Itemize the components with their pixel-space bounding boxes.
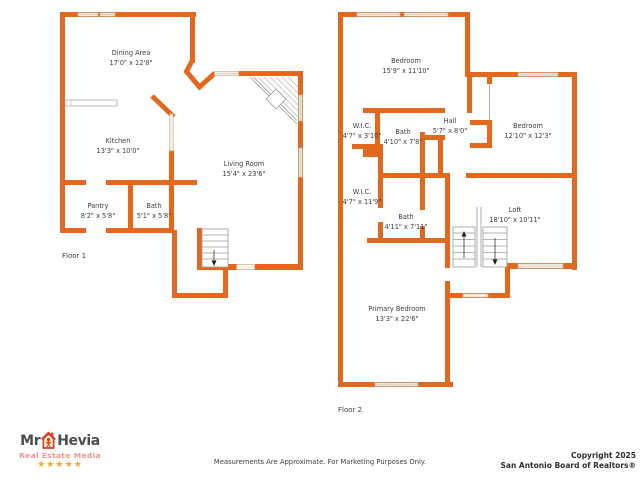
room-label-bath-lower: Bath 4'11" x 7'11" <box>385 213 428 233</box>
house-icon <box>41 431 56 450</box>
room-label-dining: Dining Area 17'0" x 12'8" <box>110 49 153 69</box>
room-label-hall: Hall 5'7" x 8'0" <box>433 117 468 137</box>
room-label-primary: Primary Bedroom 13'3" x 22'6" <box>368 305 425 325</box>
copyright-text: Copyright 2025 San Antonio Board of Real… <box>501 451 637 471</box>
room-label-bath1: Bath 5'1" x 5'8" <box>137 202 172 222</box>
room-label-kitchen: Kitchen 13'3" x 10'0" <box>97 137 140 157</box>
room-label-living: Living Room 15'4" x 23'6" <box>223 160 266 180</box>
room-label-bedroom-right: Bedroom 12'10" x 12'3" <box>504 122 551 142</box>
floor1-label: Floor 1 <box>62 252 86 260</box>
logo-text-mr: Mr <box>20 433 40 449</box>
fireplace-icon <box>250 77 298 124</box>
logo-text-hevia: Hevia <box>57 433 100 449</box>
room-label-bedroom-top: Bedroom 15'9" x 11'10" <box>382 57 429 77</box>
floorplan-canvas: Dining Area 17'0" x 12'8" Kitchen 13'3" … <box>0 0 640 480</box>
floor2-label: Floor 2 <box>338 406 362 414</box>
room-label-bath-upper: Bath 4'10" x 7'8" <box>384 128 423 148</box>
room-label-pantry: Pantry 8'2" x 5'8" <box>81 202 116 222</box>
copyright-line1: Copyright 2025 <box>501 451 637 461</box>
room-label-loft: Loft 18'10" x 10'11" <box>489 206 540 226</box>
staircase-floor1-icon <box>202 229 228 267</box>
kitchen-counter <box>65 100 117 106</box>
front-door <box>237 265 255 270</box>
floor-plan-drawing <box>0 0 640 480</box>
copyright-line2: San Antonio Board of Realtors® <box>501 461 637 471</box>
room-label-wic-lower: W.I.C. 4'7" x 11'9" <box>343 188 382 208</box>
room-label-wic-upper: W.I.C. 4'7" x 3'10" <box>343 122 382 142</box>
